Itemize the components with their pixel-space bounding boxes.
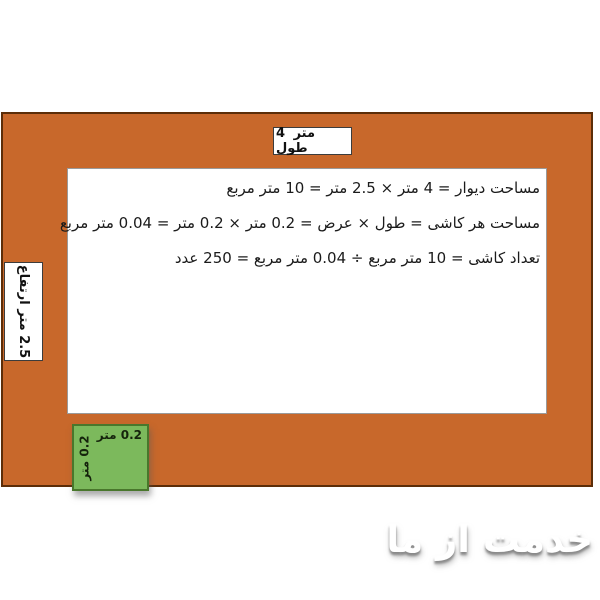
tile-height-label-wrap: 0.2 متر <box>75 426 95 489</box>
tile-height-label: 0.2 متر <box>78 435 92 480</box>
calc-line-tile-count: تعداد کاشی = 10 متر مربع ÷ 0.04 متر مربع… <box>74 240 540 275</box>
wall-height-label: 2.5 متر ارتفاع <box>16 265 31 358</box>
wall-height-label-box: 2.5 متر ارتفاع <box>4 262 43 361</box>
calculation-panel: مساحت دیوار = 4 متر × 2.5 متر = 10 متر م… <box>67 168 547 414</box>
tile-square: 0.2 متر 0.2 متر <box>72 424 149 491</box>
watermark: خدمت از ما <box>386 518 593 561</box>
wall-length-label: 4 متر طول <box>274 126 351 156</box>
wall-length-label-box: 4 متر طول <box>273 127 352 155</box>
tile-width-label: 0.2 متر <box>97 428 142 442</box>
calc-line-wall-area: مساحت دیوار = 4 متر × 2.5 متر = 10 متر م… <box>74 170 540 205</box>
calc-line-tile-area: مساحت هر کاشی = طول × عرض = 0.2 متر × 0.… <box>74 205 540 240</box>
